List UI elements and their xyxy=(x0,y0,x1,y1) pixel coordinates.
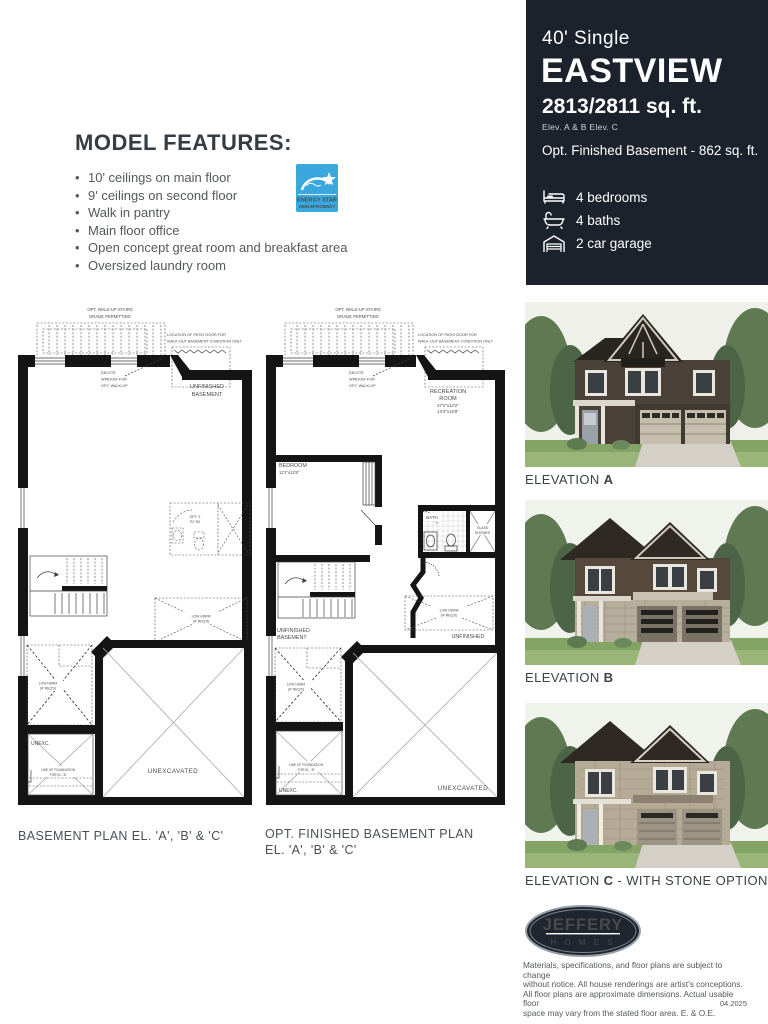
garage-icon xyxy=(542,234,566,253)
spec-row-baths: 4 baths xyxy=(542,209,620,231)
svg-text:LOW HDRM: LOW HDRM xyxy=(287,683,306,687)
model-sqft: 2813/2811 sq. ft. xyxy=(542,95,702,119)
patio-label: WALK-OUT BASEMENT CONDITION ONLY xyxy=(418,340,494,344)
room-label: UNFINISHED xyxy=(190,384,224,390)
spec-row-bedrooms: 4 bedrooms xyxy=(542,186,647,208)
svg-text:(IF REQ'D): (IF REQ'D) xyxy=(40,687,56,691)
feature-item: Open concept great room and breakfast ar… xyxy=(75,240,505,257)
window xyxy=(281,355,315,367)
feature-item: 9' ceilings on second floor xyxy=(75,188,505,205)
model-info-panel: 40' Single EASTVIEW 2813/2811 sq. ft. El… xyxy=(526,0,768,285)
patio-label: LOCATION OF PATIO DOOR FOR xyxy=(167,333,226,337)
elevation-card-c: ELEVATION C - WITH STONE OPTION xyxy=(525,703,768,888)
svg-text:PC R/I: PC R/I xyxy=(190,520,200,524)
walkup-label: OPT. WALK-UP STAIRS xyxy=(87,307,133,312)
svg-text:FOR EL. 'B': FOR EL. 'B' xyxy=(50,773,67,777)
svg-text:UNEXC.: UNEXC. xyxy=(31,741,50,747)
window xyxy=(18,634,28,678)
room-label: UNFINISHED xyxy=(452,634,485,640)
delete-window-label: WINDOW FOR xyxy=(349,378,375,382)
feature-item: 10' ceilings on main floor xyxy=(75,170,505,187)
elevation-b-rendering xyxy=(525,500,768,665)
features-heading: MODEL FEATURES: xyxy=(75,130,505,156)
patio-label: LOCATION OF PATIO DOOR FOR xyxy=(418,333,477,337)
energy-star-subtext: HIGH EFFICIENCY xyxy=(299,204,336,209)
unexcavated-small-zone: LINE OF FOUNDATION FOR EL. 'B' UNEXC. xyxy=(276,731,342,795)
window xyxy=(18,486,28,530)
low-headroom-zone: LOW HDRM (IF REQ'D) xyxy=(27,645,92,725)
spec-label: 4 bedrooms xyxy=(576,190,647,205)
window xyxy=(109,355,139,367)
opt-finished-basement-plan-drawing: OPT. WALK-UP STAIRS GRADE PERMITTING LOC… xyxy=(263,300,508,825)
spec-label: 4 baths xyxy=(576,213,620,228)
energy-star-text: ENERGY STAR xyxy=(297,198,337,204)
unexcavated-zone: UNEXCAVATED xyxy=(341,641,505,805)
room-dim: 27'2"x12'2" xyxy=(437,403,459,408)
room-dim: 13'4"x16'8" xyxy=(437,409,459,414)
window xyxy=(357,355,387,367)
logo-sub: H O M E S xyxy=(550,938,615,947)
stairs xyxy=(30,556,107,616)
features-list: 10' ceilings on main floor 9' ceilings o… xyxy=(75,170,505,274)
room-dim: 11'2"x12'6" xyxy=(279,470,300,475)
delete-window-label: DELETE xyxy=(349,371,364,375)
room-label: ROOM xyxy=(439,396,457,402)
svg-text:LINE OF FOUNDATION: LINE OF FOUNDATION xyxy=(289,763,324,767)
svg-text:UNEXCAVATED: UNEXCAVATED xyxy=(438,785,489,792)
low-headroom-zone: LOW HDRM (IF REQ'D) xyxy=(275,648,341,722)
unexcavated-small-zone: UNEXC. LINE OF FOUNDATION FOR EL. 'B' xyxy=(28,734,93,795)
svg-text:(IF REQ'D): (IF REQ'D) xyxy=(441,614,458,618)
model-name: EASTVIEW xyxy=(541,52,723,91)
svg-text:LOW HDRM: LOW HDRM xyxy=(39,682,58,686)
svg-text:(IF REQ'D): (IF REQ'D) xyxy=(193,620,210,624)
delete-window-label: OPT. WALK-UP xyxy=(101,384,128,388)
unexcavated-zone: UNEXCAVATED xyxy=(91,636,252,805)
elevation-card-a: ELEVATION A xyxy=(525,302,768,487)
date-code: 04.2025 xyxy=(523,999,747,1008)
opt-3pc-rough-in: OPT. 3 PC R/I xyxy=(170,503,250,555)
walkup-label: GRADE PERMITTING xyxy=(337,314,379,319)
room-label: SHOWER xyxy=(475,531,491,535)
basement-plan-drawing: OPT. WALK-UP STAIRS GRADE PERMITTING LOC… xyxy=(15,300,255,825)
elevation-b-caption: ELEVATION B xyxy=(525,670,768,685)
room-label: UNFINISHED xyxy=(277,628,310,634)
model-type: 40' Single xyxy=(542,28,630,50)
elevation-a-caption: ELEVATION A xyxy=(525,472,768,487)
room-label: RECREATION xyxy=(430,389,466,395)
spec-row-garage: 2 car garage xyxy=(542,232,652,254)
feature-item: Main floor office xyxy=(75,223,505,240)
window xyxy=(266,486,276,530)
logo-name: JEFFERY xyxy=(543,916,624,934)
feature-item: Oversized laundry room xyxy=(75,258,505,275)
elevation-a-rendering xyxy=(525,302,768,467)
svg-text:FOR EL. 'B': FOR EL. 'B' xyxy=(298,768,315,772)
basement-plan-caption: BASEMENT PLAN EL. 'A', 'B' & 'C' xyxy=(18,828,223,844)
svg-text:LOW HDRM: LOW HDRM xyxy=(440,609,459,613)
elevation-note: Elev. A & B Elev. C xyxy=(542,122,618,132)
energy-star-logo: ENERGY STAR HIGH EFFICIENCY xyxy=(296,164,338,212)
builder-logo: JEFFERY H O M E S xyxy=(524,905,642,957)
elevation-card-b: ELEVATION B xyxy=(525,500,768,685)
bath-icon xyxy=(542,211,566,229)
low-headroom-zone: LOW HDRM (IF REQ'D) xyxy=(155,598,247,642)
bed-icon xyxy=(542,189,566,206)
delete-window-label: WINDOW FOR xyxy=(101,378,127,382)
stairs xyxy=(278,562,355,618)
walkup-label: GRADE PERMITTING xyxy=(89,314,131,319)
window xyxy=(33,355,67,367)
opt-basement-plan-caption: OPT. FINISHED BASEMENT PLAN EL. 'A', 'B'… xyxy=(265,826,474,858)
room-label: BASEMENT xyxy=(192,392,223,398)
svg-text:LINE OF FOUNDATION: LINE OF FOUNDATION xyxy=(41,768,76,772)
elevation-c-caption: ELEVATION C - WITH STONE OPTION xyxy=(525,873,768,888)
disclaimer: Materials, specifications, and floor pla… xyxy=(523,961,747,1019)
elevation-c-rendering xyxy=(525,703,768,868)
spec-label: 2 car garage xyxy=(576,236,652,251)
svg-text:UNEXCAVATED: UNEXCAVATED xyxy=(148,768,199,775)
bathroom: BATH GLASS SHOWER xyxy=(418,505,495,558)
svg-text:(IF REQ'D): (IF REQ'D) xyxy=(288,688,304,692)
room-label: GLASS xyxy=(477,526,489,530)
svg-text:LOW HDRM: LOW HDRM xyxy=(192,615,211,619)
delete-window-label: OPT. WALK-UP xyxy=(349,384,376,388)
room-label: BEDROOM xyxy=(279,463,307,469)
room-label: BATH xyxy=(426,515,437,520)
interior-wall xyxy=(413,558,423,638)
feature-item: Walk in pantry xyxy=(75,205,505,222)
room-label: BASEMENT xyxy=(277,635,307,641)
svg-text:OPT. 3: OPT. 3 xyxy=(190,515,201,519)
basement-note: Opt. Finished Basement - 862 sq. ft. xyxy=(542,143,758,158)
bedroom: BEDROOM 11'2"x12'6" xyxy=(270,455,382,562)
svg-text:UNEXC.: UNEXC. xyxy=(279,788,298,794)
window xyxy=(266,634,276,678)
model-features-section: MODEL FEATURES: 10' ceilings on main flo… xyxy=(75,130,505,275)
patio-label: WALK-OUT BASEMENT CONDITION ONLY xyxy=(167,340,243,344)
walkup-label: OPT. WALK-UP STAIRS xyxy=(335,307,381,312)
delete-window-label: DELETE xyxy=(101,371,116,375)
brochure-page: MODEL FEATURES: 10' ceilings on main flo… xyxy=(0,0,768,1024)
